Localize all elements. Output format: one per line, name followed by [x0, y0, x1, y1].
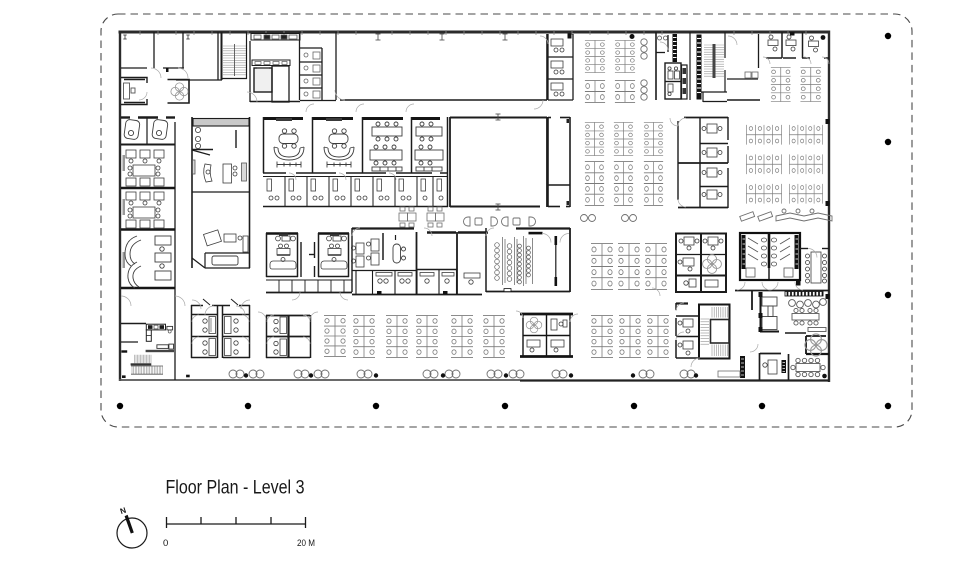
svg-text:N: N [119, 506, 127, 516]
svg-text:Floor Plan - Level 3: Floor Plan - Level 3 [166, 477, 305, 499]
svg-text:20 M: 20 M [297, 538, 315, 549]
svg-text:0: 0 [163, 538, 168, 549]
